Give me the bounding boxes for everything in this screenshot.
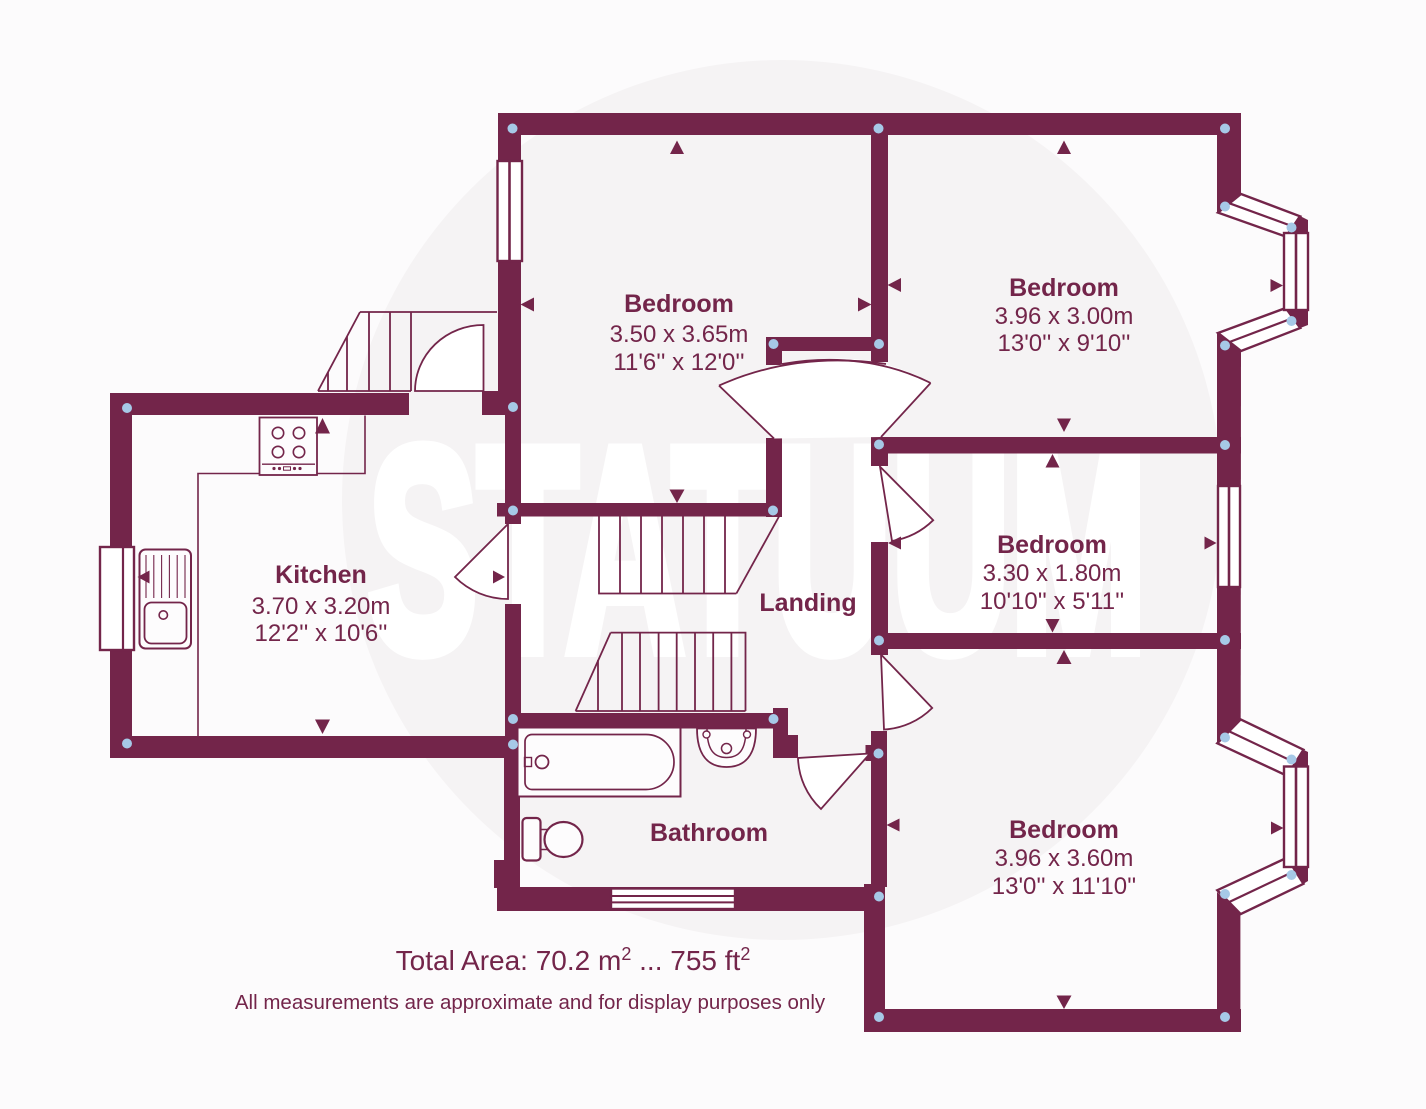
- svg-text:10'10'' x 5'11'': 10'10'' x 5'11'': [980, 588, 1124, 615]
- svg-text:All measurements are approxima: All measurements are approximate and for…: [235, 991, 826, 1014]
- svg-text:Bathroom: Bathroom: [650, 819, 768, 847]
- svg-text:3.30 x 1.80m: 3.30 x 1.80m: [983, 560, 1122, 587]
- svg-text:Bedroom: Bedroom: [1009, 274, 1119, 302]
- svg-text:Bedroom: Bedroom: [624, 290, 734, 318]
- svg-text:13'0'' x 9'10'': 13'0'' x 9'10'': [998, 330, 1131, 357]
- svg-text:3.96 x 3.00m: 3.96 x 3.00m: [995, 303, 1134, 330]
- svg-text:Kitchen: Kitchen: [275, 561, 367, 589]
- svg-text:Bedroom: Bedroom: [997, 531, 1107, 559]
- svg-text:12'2'' x 10'6'': 12'2'' x 10'6'': [255, 620, 388, 647]
- svg-text:13'0'' x 11'10'': 13'0'' x 11'10'': [992, 873, 1136, 900]
- svg-text:11'6'' x 12'0'': 11'6'' x 12'0'': [613, 349, 744, 376]
- svg-text:3.50 x 3.65m: 3.50 x 3.65m: [610, 321, 749, 348]
- svg-text:Total Area: 70.2 m2 ... 755 ft: Total Area: 70.2 m2 ... 755 ft2: [396, 944, 751, 976]
- svg-text:3.70 x 3.20m: 3.70 x 3.20m: [252, 593, 391, 620]
- svg-text:Landing: Landing: [759, 589, 856, 617]
- svg-text:Bedroom: Bedroom: [1009, 816, 1119, 844]
- svg-text:3.96 x 3.60m: 3.96 x 3.60m: [995, 845, 1134, 872]
